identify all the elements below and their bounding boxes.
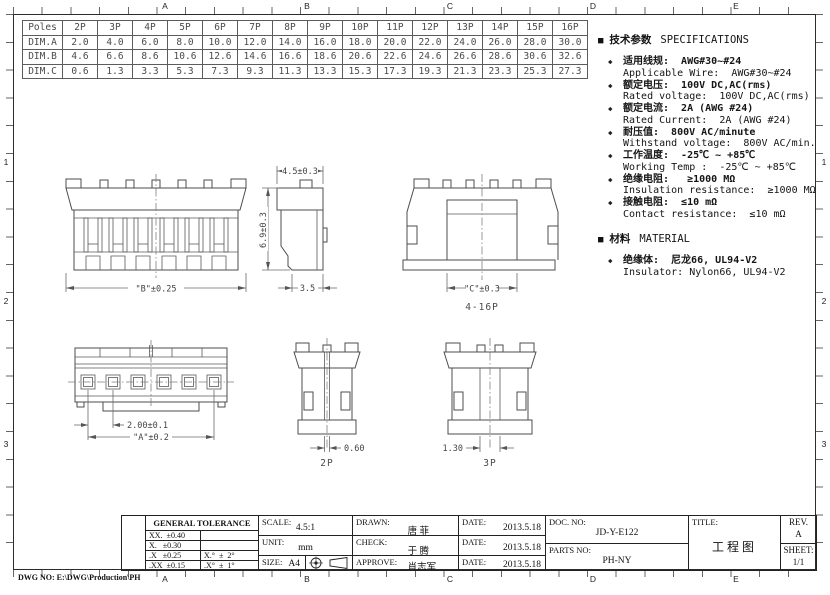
parts-no-label: PARTS NO: (549, 545, 591, 555)
dim-a: "A"±0.2 (88, 390, 214, 443)
range-label: 4-16P (465, 302, 499, 313)
rev-value: A (781, 529, 816, 539)
dim-2p: 0.60 (310, 436, 364, 454)
tolerance-cell: .X ±0.25 (146, 551, 201, 561)
scale-value: 4.5:1 (259, 523, 352, 533)
rev-cell: REV. A (781, 516, 817, 544)
drawn-cell: DRAWN: 唐 菲 (353, 516, 459, 536)
tolerance-cell: .X° ± 1° (201, 561, 259, 571)
rev-label: REV. (781, 517, 816, 527)
bottom-view: 2.00±0.1 "A"±0.2 (68, 340, 234, 443)
sheet-value: 1/1 (781, 557, 816, 567)
check-cell: CHECK: 于 腾 (353, 536, 459, 556)
sheet-cell: SHEET: 1/1 (781, 544, 817, 571)
title-value: 工程图 (689, 538, 780, 555)
dim-depth: 3.5 (278, 274, 337, 294)
date-value: 2013.5.18 (459, 560, 541, 570)
dim-depth-label: 3.5 (300, 284, 315, 294)
back-view: "C"±0.3 4-16P (403, 174, 558, 313)
parts-no-cell: PARTS NO: PH-NY (546, 544, 689, 571)
tolerance-cell: XX. ±0.40 (146, 531, 201, 541)
general-tolerance-header: GENERAL TOLERANCE (146, 516, 259, 531)
unit-value: mm (259, 543, 352, 553)
title-cell: TITLE: 工程图 (689, 516, 781, 571)
dim-b-label: "B"±0.25 (136, 285, 177, 295)
sheet-label: SHEET: (781, 545, 816, 555)
approve-cell: APPROVE: 肖志军 (353, 556, 459, 571)
size-label: SIZE: (262, 557, 282, 567)
parts-no-value: PH-NY (546, 556, 688, 566)
dim-height: 6.9±0.3 (257, 188, 290, 270)
dim-a-label: "A"±0.2 (133, 433, 169, 443)
dwg-no-footer: DWG NO: E:\DWG\Production\PH (18, 573, 141, 582)
connector-drawing-views: "B"±0.25 4.5±0.3 6.9±0.3 (0, 0, 830, 595)
date-cell: DATE: 2013.5.18 (459, 556, 546, 571)
dim-width-label: 4.5±0.3 (282, 167, 318, 177)
drawn-value: 唐 菲 (408, 523, 429, 536)
unit-cell: UNIT: mm (259, 536, 353, 556)
tolerance-cell (201, 531, 259, 541)
check-label: CHECK: (356, 537, 387, 547)
title-block: GENERAL TOLERANCE XX. ±0.40 X. ±0.30 .X … (121, 515, 817, 571)
tolerance-cell (201, 541, 259, 551)
drawn-label: DRAWN: (356, 517, 390, 527)
approve-label: APPROVE: (356, 557, 397, 567)
approve-value: 肖志军 (408, 559, 437, 571)
label-3p: 3P (483, 458, 496, 469)
view-2p: 0.60 2P (294, 338, 364, 469)
label-2p: 2P (320, 458, 333, 469)
date-value: 2013.5.18 (459, 523, 541, 533)
date-cell: DATE: 2013.5.18 (459, 536, 546, 556)
dim-3p-label: 1.30 (443, 444, 463, 454)
view-3p: 1.30 3P (443, 338, 536, 469)
date-value: 2013.5.18 (459, 543, 541, 553)
dim-c-label: "C"±0.3 (464, 285, 500, 295)
tolerance-cell: X.° ± 2° (201, 551, 259, 561)
projection-symbol-cell (306, 556, 353, 571)
title-block-spacer-cell (122, 516, 146, 571)
front-view: "B"±0.25 (66, 174, 246, 295)
size-value: A4 (288, 559, 300, 569)
title-label: TITLE: (692, 517, 718, 527)
dim-pitch-label: 2.00±0.1 (127, 421, 168, 431)
size-cell: SIZE: A4 (259, 556, 306, 571)
doc-no-value: JD-Y-E122 (546, 528, 688, 538)
dim-height-label: 6.9±0.3 (259, 212, 269, 248)
check-value: 于 腾 (408, 543, 429, 556)
scale-cell: SCALE: 4.5:1 (259, 516, 353, 536)
tolerance-cell: X. ±0.30 (146, 541, 201, 551)
side-view: 4.5±0.3 6.9±0.3 3.5 (257, 165, 337, 294)
third-angle-projection-icon (306, 556, 351, 570)
doc-no-cell: DOC. NO: JD-Y-E122 (546, 516, 689, 544)
doc-no-label: DOC. NO: (549, 517, 586, 527)
dim-2p-label: 0.60 (344, 444, 364, 454)
date-cell: DATE: 2013.5.18 (459, 516, 546, 536)
dim-3p: 1.30 (443, 436, 514, 454)
tolerance-cell: .XX ±0.15 (146, 561, 201, 571)
